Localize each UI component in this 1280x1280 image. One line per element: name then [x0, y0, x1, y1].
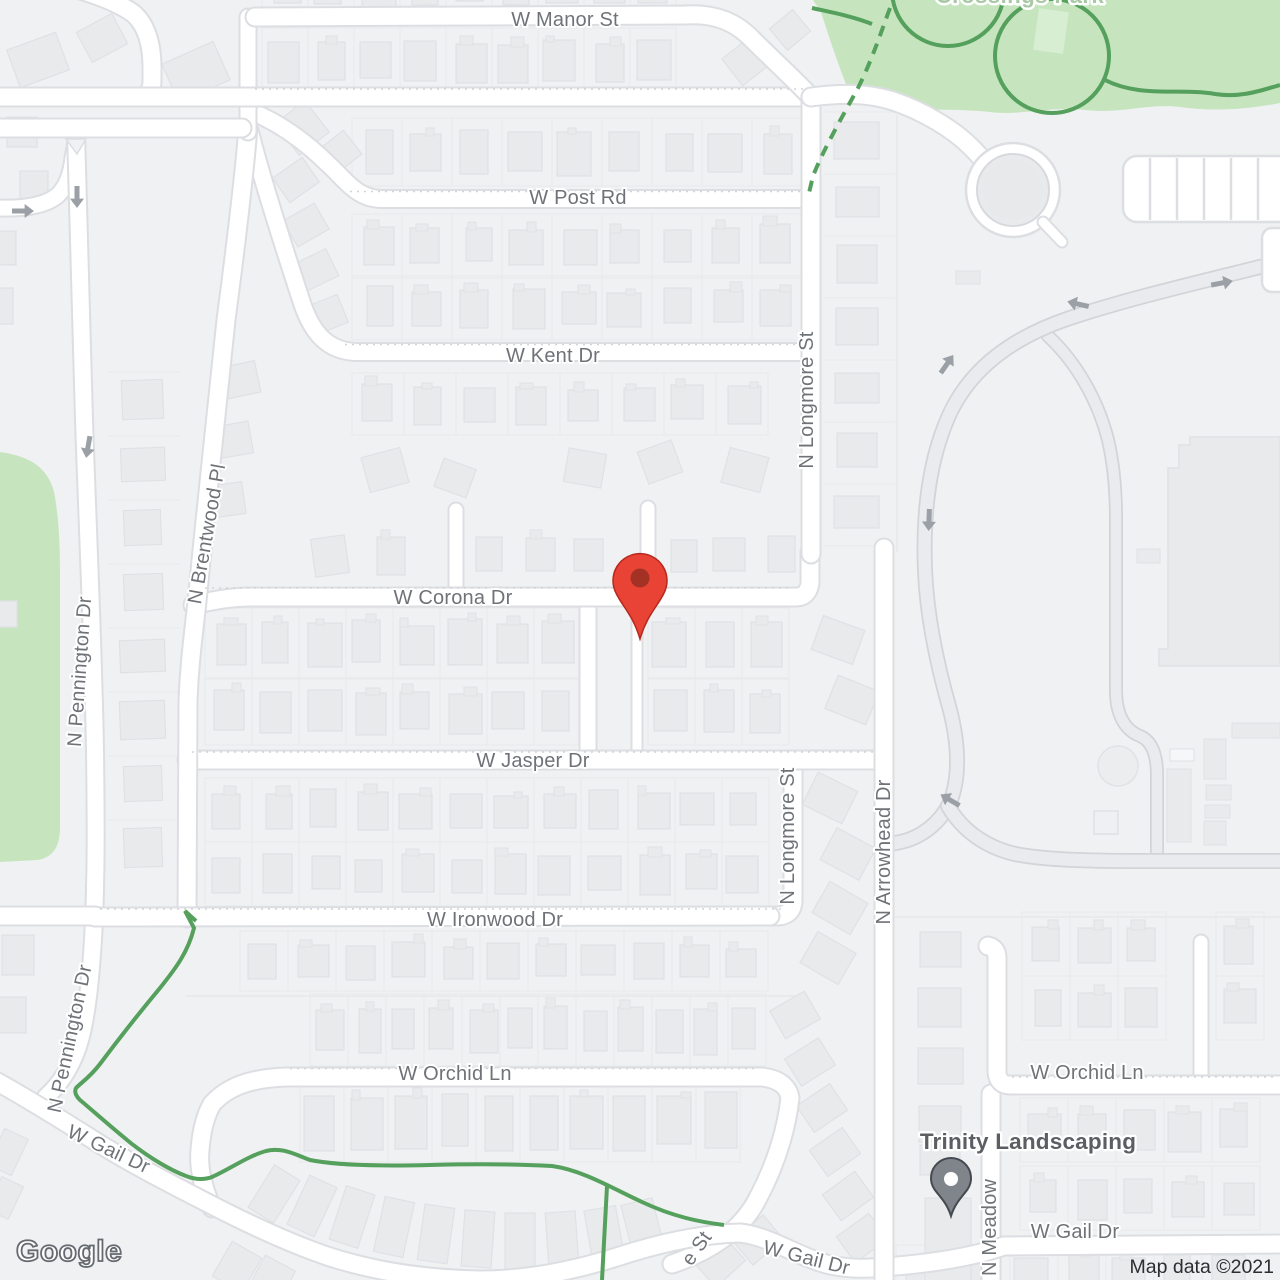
svg-text:W Kent Dr: W Kent Dr [506, 345, 600, 367]
svg-text:W Post Rd: W Post Rd [529, 187, 626, 209]
svg-text:N Arrowhead Dr: N Arrowhead Dr [873, 779, 895, 924]
svg-text:N Longmore St: N Longmore St [777, 767, 799, 904]
svg-text:W Jasper Dr: W Jasper Dr [476, 750, 589, 772]
svg-text:Map data ©2021: Map data ©2021 [1130, 1256, 1274, 1278]
svg-text:W Corona Dr: W Corona Dr [394, 587, 513, 609]
svg-text:W Manor St: W Manor St [511, 9, 619, 31]
svg-text:W Ironwood Dr: W Ironwood Dr [427, 909, 563, 931]
svg-text:Crossings Park: Crossings Park [936, 0, 1105, 8]
svg-text:Trinity Landscaping: Trinity Landscaping [920, 1129, 1136, 1154]
svg-text:W Orchid Ln: W Orchid Ln [1030, 1062, 1143, 1084]
svg-text:N Longmore St: N Longmore St [796, 331, 818, 468]
svg-text:W Gail Dr: W Gail Dr [1031, 1221, 1120, 1243]
svg-text:N Meadow: N Meadow [979, 1178, 1001, 1276]
svg-text:Google: Google [16, 1235, 122, 1268]
svg-text:W Orchid Ln: W Orchid Ln [398, 1063, 511, 1085]
